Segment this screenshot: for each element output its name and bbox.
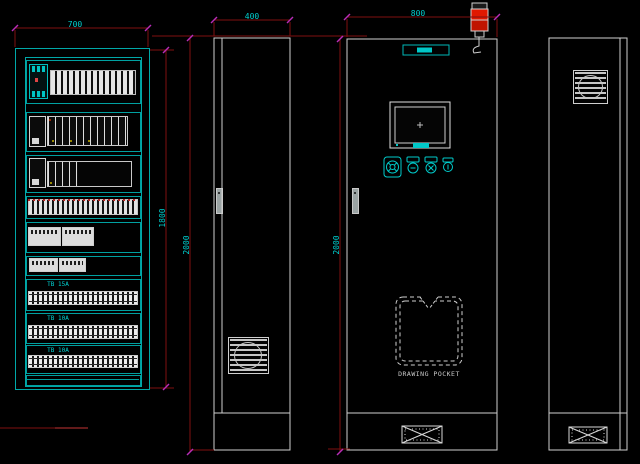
pushbutton-3-icon bbox=[443, 158, 453, 172]
dim-800: 800 bbox=[403, 9, 433, 19]
dim-400: 400 bbox=[237, 12, 267, 22]
front-view-outline bbox=[347, 39, 497, 450]
dim-1800: 1800 bbox=[158, 203, 168, 233]
drawing-pocket-label: DRAWING POCKET bbox=[387, 370, 471, 378]
pushbutton-2-icon bbox=[425, 157, 437, 173]
linework-overlay bbox=[0, 0, 640, 464]
rear-view-outline bbox=[549, 38, 627, 450]
rear-gland-plate-icon bbox=[569, 427, 607, 443]
hmi-panel-icon bbox=[390, 102, 450, 148]
front-gland-plate-icon bbox=[402, 426, 442, 443]
emergency-stop-button-icon bbox=[384, 157, 401, 177]
dimension-lines bbox=[0, 17, 497, 452]
pushbutton-1-icon bbox=[407, 157, 419, 173]
drawing-pocket-icon bbox=[396, 294, 462, 365]
dimension-arrows bbox=[12, 14, 500, 455]
cad-canvas: TB 15A TB 10A TB 10A bbox=[0, 0, 640, 464]
dim-2000-front: 2000 bbox=[332, 230, 342, 260]
dim-700: 700 bbox=[60, 20, 90, 30]
signal-tower-icon bbox=[471, 3, 488, 53]
nameplate-icon bbox=[403, 45, 449, 55]
side-view-outline bbox=[214, 38, 290, 450]
dim-2000-side: 2000 bbox=[182, 230, 192, 260]
